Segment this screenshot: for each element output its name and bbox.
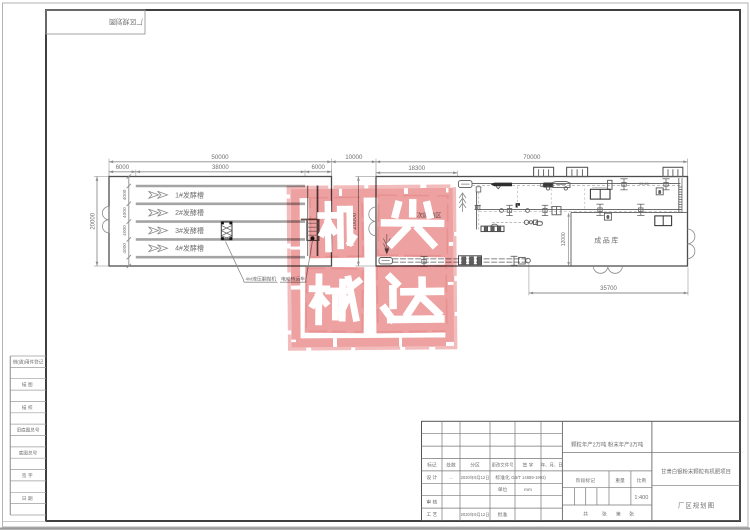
svg-text:借(通)用件登记: 借(通)用件登记 <box>13 359 44 366</box>
svg-text:70000: 70000 <box>523 154 541 161</box>
svg-text:工 艺: 工 艺 <box>426 512 437 518</box>
svg-text:38000: 38000 <box>212 165 229 171</box>
svg-text:成品库: 成品库 <box>594 236 620 245</box>
svg-text:2020年9月12日: 2020年9月12日 <box>461 474 490 481</box>
svg-text:更改文件号: 更改文件号 <box>492 461 515 468</box>
svg-text:18300: 18300 <box>408 166 425 172</box>
svg-text:张: 张 <box>629 511 634 518</box>
svg-text:厂区规划图: 厂区规划图 <box>109 18 143 27</box>
svg-text:....: .... <box>449 475 453 480</box>
svg-text:2#发酵槽: 2#发酵槽 <box>175 208 204 217</box>
svg-text:标记: 标记 <box>427 461 437 468</box>
svg-text:描图: 描图 <box>22 381 34 388</box>
svg-text:50000: 50000 <box>211 154 229 161</box>
svg-text:50-80: 50-80 <box>639 182 649 186</box>
svg-text:2020年9月12日: 2020年9月12日 <box>461 511 490 518</box>
svg-text:重量: 重量 <box>615 477 625 484</box>
svg-text:比例: 比例 <box>637 477 647 484</box>
svg-text:签 字: 签 字 <box>523 461 534 468</box>
svg-text:4000: 4000 <box>122 207 128 218</box>
svg-text:4000: 4000 <box>122 225 128 236</box>
svg-text:6: 6 <box>607 215 610 220</box>
svg-text:3: 3 <box>658 189 661 194</box>
svg-text:阶段标记: 阶段标记 <box>576 477 595 484</box>
svg-text:4000: 4000 <box>122 189 128 200</box>
svg-text:6000: 6000 <box>312 165 326 171</box>
svg-text:1:400: 1:400 <box>634 495 648 501</box>
svg-text:颗粒年产2万吨 粉末年产3万吨: 颗粒年产2万吨 粉末年产3万吨 <box>571 441 644 449</box>
svg-text:审 核: 审 核 <box>426 499 437 506</box>
svg-text:厂区规划图: 厂区规划图 <box>678 501 715 510</box>
svg-text:4#发酵槽: 4#发酵槽 <box>175 244 204 253</box>
svg-text:GB/T 14689-1993): GB/T 14689-1993) <box>511 475 546 480</box>
svg-text:描校: 描校 <box>22 404 34 411</box>
svg-text:分区: 分区 <box>470 461 480 468</box>
svg-text:10000: 10000 <box>345 154 363 161</box>
svg-text:处数: 处数 <box>446 461 456 468</box>
svg-text:共: 共 <box>583 511 588 518</box>
svg-text:4000: 4000 <box>122 243 128 254</box>
svg-text:标准化: 标准化 <box>495 474 510 481</box>
svg-text:20000: 20000 <box>91 212 97 229</box>
svg-text:批准: 批准 <box>498 511 508 518</box>
svg-text:第: 第 <box>616 511 621 518</box>
svg-text:12000: 12000 <box>561 232 567 246</box>
svg-text:35700: 35700 <box>600 286 617 292</box>
svg-text:底图总号: 底图总号 <box>19 449 38 456</box>
svg-text:单位: 单位 <box>498 486 508 493</box>
svg-text:4M液压翻抛机: 4M液压翻抛机 <box>246 276 277 283</box>
svg-text:3#发酵槽: 3#发酵槽 <box>175 226 204 235</box>
svg-text:甘肃白银粉末颗粒有机肥项目: 甘肃白银粉末颗粒有机肥项目 <box>661 468 731 476</box>
svg-text:签字: 签字 <box>22 472 34 478</box>
svg-text:年、月、日: 年、月、日 <box>541 461 563 468</box>
svg-text:旧底图总号: 旧底图总号 <box>17 427 40 434</box>
svg-text:张: 张 <box>602 511 607 518</box>
svg-text:1#发酵槽: 1#发酵槽 <box>175 190 204 199</box>
svg-text:mm: mm <box>524 488 532 493</box>
svg-text:6000: 6000 <box>116 165 130 171</box>
svg-text:设 计: 设 计 <box>426 474 437 481</box>
